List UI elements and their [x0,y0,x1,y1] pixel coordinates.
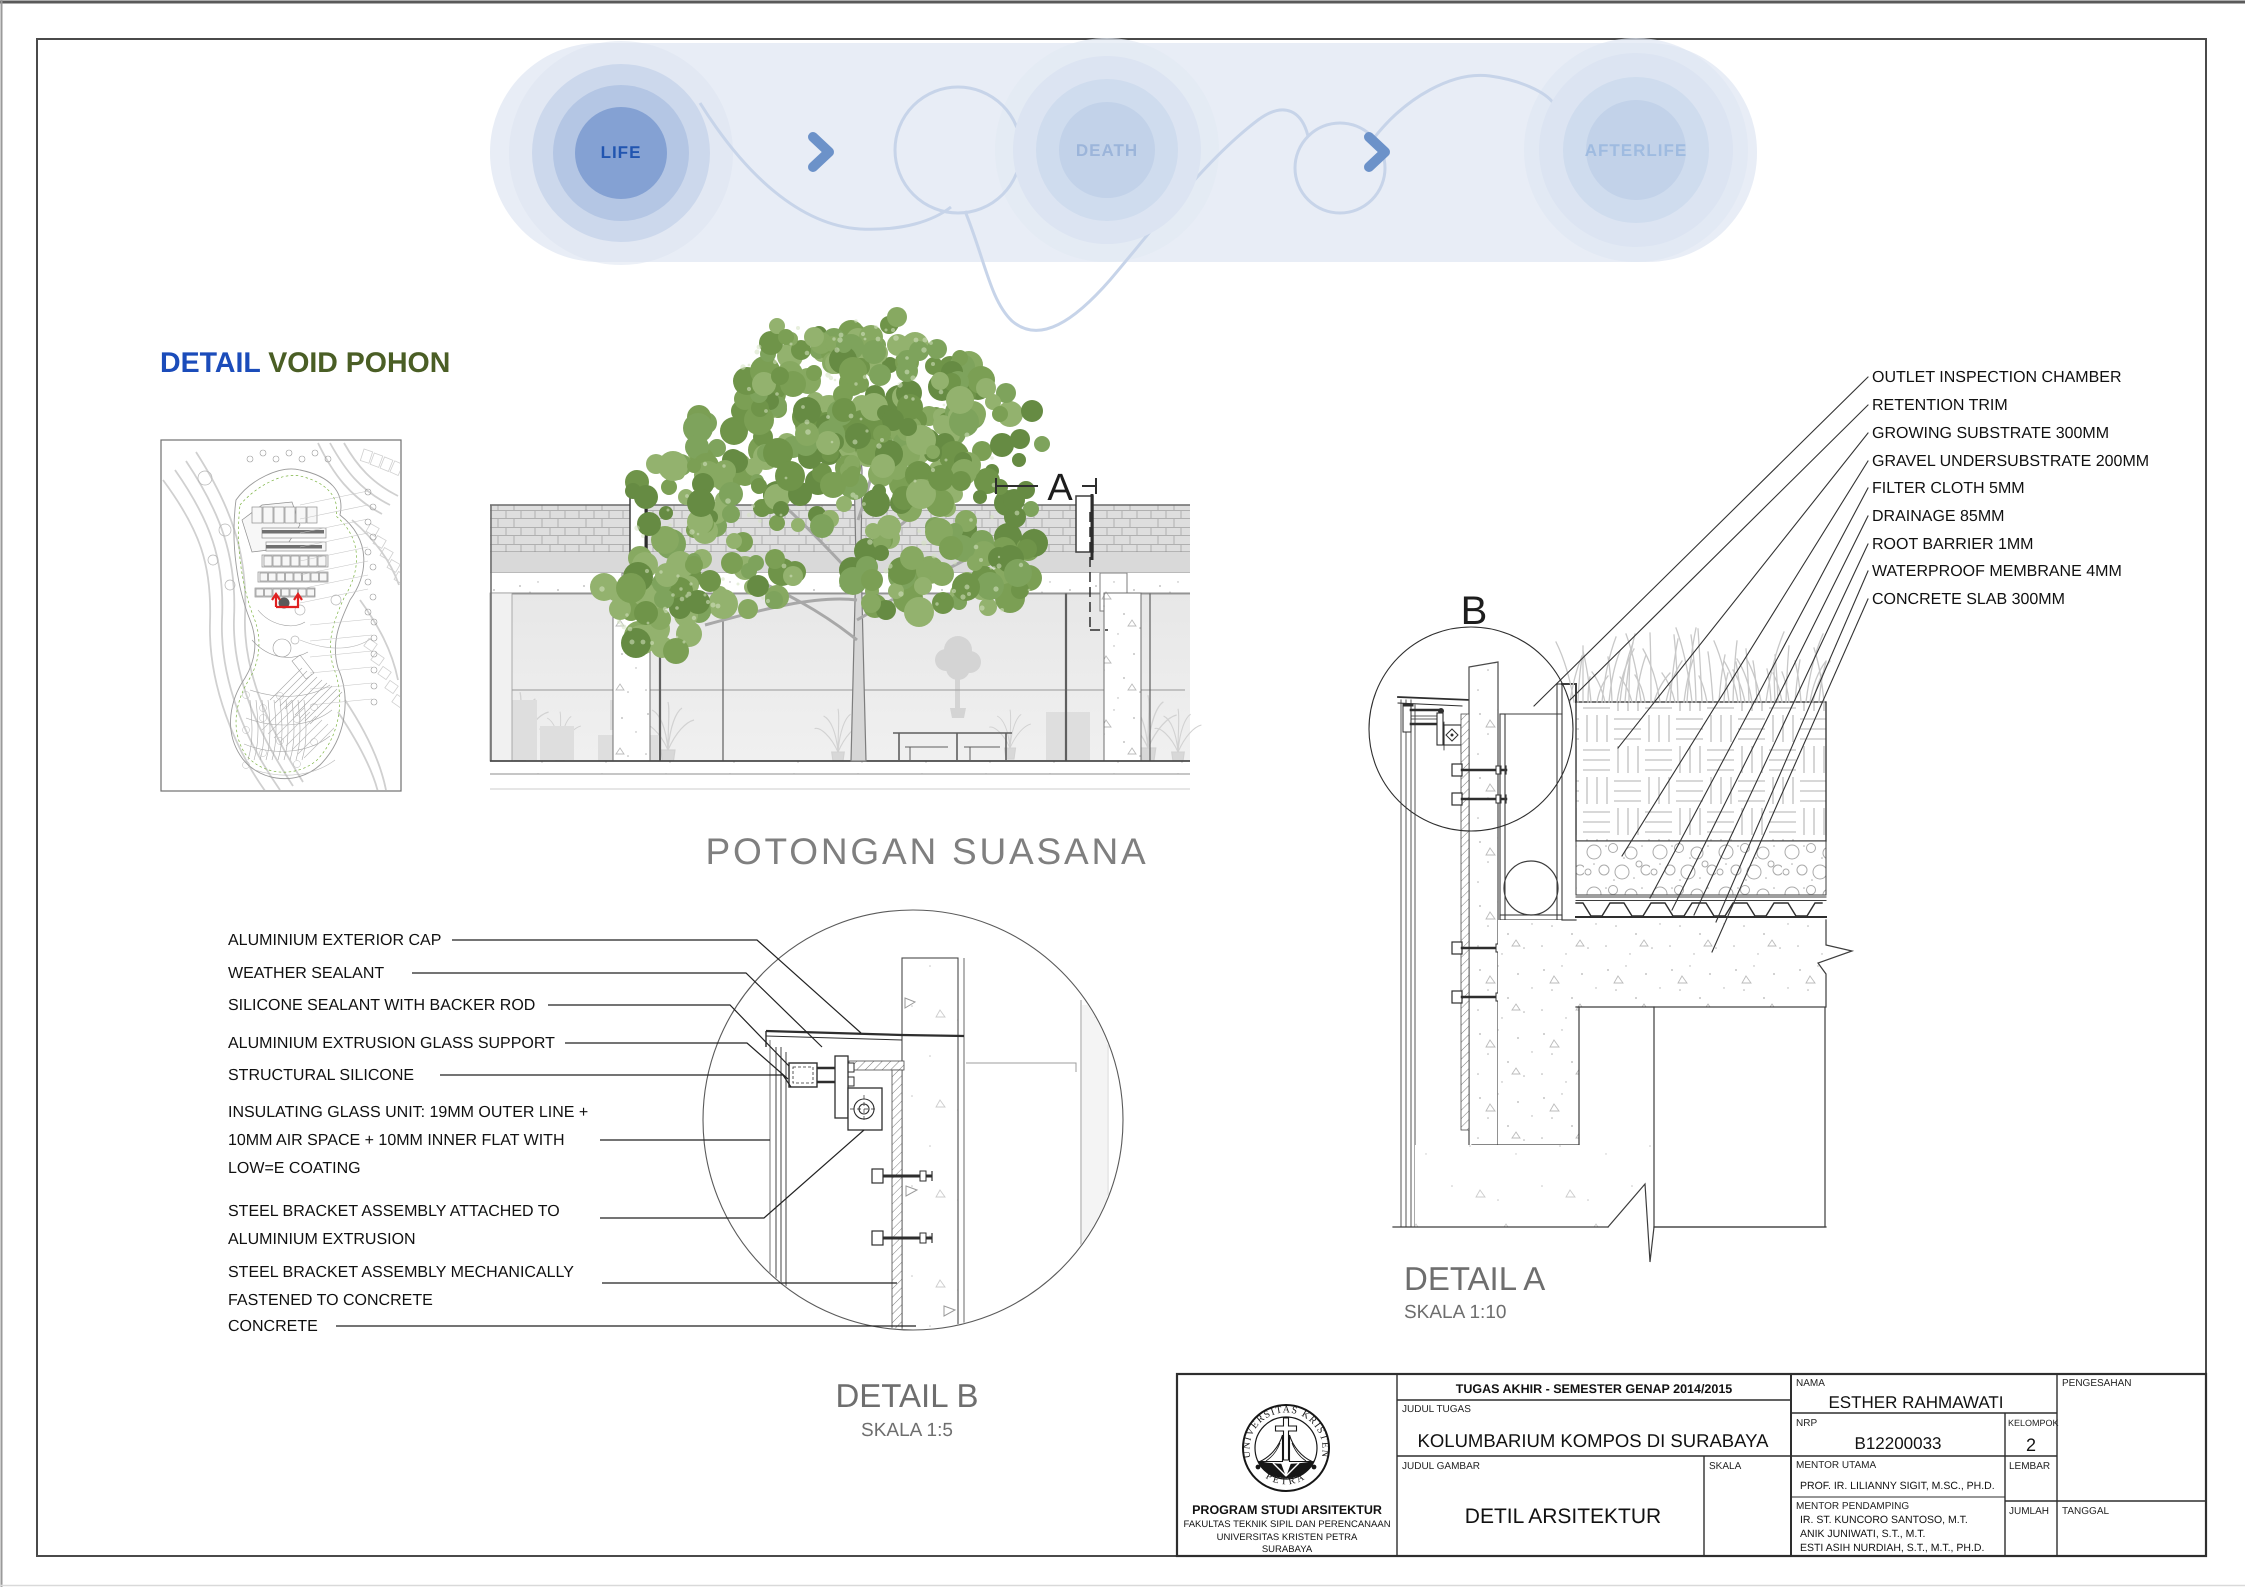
svg-text:SKALA 1:5: SKALA 1:5 [861,1420,953,1441]
svg-text:IR. ST. KUNCORO SANTOSO, M.T.: IR. ST. KUNCORO SANTOSO, M.T. [1800,1514,1968,1526]
svg-text:JUDUL GAMBAR: JUDUL GAMBAR [1402,1461,1480,1472]
svg-text:FASTENED TO CONCRETE: FASTENED TO CONCRETE [228,1292,433,1309]
svg-text:AFTERLIFE: AFTERLIFE [1585,141,1688,160]
svg-text:PENGESAHAN: PENGESAHAN [2062,1378,2131,1389]
svg-text:TUGAS AKHIR - SEMESTER GENAP 2: TUGAS AKHIR - SEMESTER GENAP 2014/2015 [1456,1382,1733,1396]
svg-text:NAMA: NAMA [1796,1378,1825,1389]
svg-text:STEEL BRACKET ASSEMBLY ATTACHE: STEEL BRACKET ASSEMBLY ATTACHED TO [228,1203,560,1220]
svg-text:STEEL BRACKET ASSEMBLY MECHANI: STEEL BRACKET ASSEMBLY MECHANICALLY [228,1264,574,1281]
svg-text:LEMBAR: LEMBAR [2009,1461,2050,1472]
svg-text:STRUCTURAL SILICONE: STRUCTURAL SILICONE [228,1067,414,1084]
svg-text:SKALA 1:10: SKALA 1:10 [1404,1302,1506,1323]
svg-text:KOLUMBARIUM KOMPOS DI SURABAYA: KOLUMBARIUM KOMPOS DI SURABAYA [1418,1430,1770,1451]
svg-text:DRAINAGE 85MM: DRAINAGE 85MM [1872,508,2004,525]
svg-text:NRP: NRP [1796,1418,1817,1429]
svg-text:KELOMPOK: KELOMPOK [2008,1418,2059,1428]
svg-text:DETAIL B: DETAIL B [835,1377,978,1414]
svg-text:B: B [1461,589,1488,633]
svg-text:INSULATING GLASS UNIT: 19MM OU: INSULATING GLASS UNIT: 19MM OUTER LINE + [228,1104,588,1121]
svg-text:MENTOR PENDAMPING: MENTOR PENDAMPING [1796,1501,1909,1512]
svg-text:SILICONE SEALANT WITH BACKER R: SILICONE SEALANT WITH BACKER ROD [228,997,535,1014]
svg-text:DETIL ARSITEKTUR: DETIL ARSITEKTUR [1465,1505,1661,1528]
svg-text:JUMLAH: JUMLAH [2009,1506,2049,1517]
svg-text:OUTLET INSPECTION CHAMBER: OUTLET INSPECTION CHAMBER [1872,369,2122,386]
svg-text:UNIVERSITAS KRISTEN PETRA: UNIVERSITAS KRISTEN PETRA [1217,1532,1358,1543]
svg-text:ALUMINIUM EXTRUSION: ALUMINIUM EXTRUSION [228,1231,416,1248]
svg-text:GRAVEL UNDERSUBSTRATE 200MM: GRAVEL UNDERSUBSTRATE 200MM [1872,453,2149,470]
svg-text:WEATHER SEALANT: WEATHER SEALANT [228,965,384,982]
svg-text:ESTI ASIH NURDIAH, S.T., M.T.,: ESTI ASIH NURDIAH, S.T., M.T., PH.D. [1800,1542,1984,1554]
svg-text:POTONGAN SUASANA: POTONGAN SUASANA [706,831,1149,872]
svg-text:GROWING SUBSTRATE 300MM: GROWING SUBSTRATE 300MM [1872,425,2109,442]
svg-text:PROGRAM STUDI ARSITEKTUR: PROGRAM STUDI ARSITEKTUR [1192,1503,1382,1517]
svg-text:FAKULTAS TEKNIK SIPIL DAN PERE: FAKULTAS TEKNIK SIPIL DAN PERENCANAAN [1183,1519,1390,1530]
svg-text:LOW=E COATING: LOW=E COATING [228,1160,361,1177]
svg-text:DETAIL VOID POHON: DETAIL VOID POHON [160,347,450,379]
svg-text:ALUMINIUM EXTRUSION GLASS SUPP: ALUMINIUM EXTRUSION GLASS SUPPORT [228,1035,555,1052]
svg-text:CONCRETE: CONCRETE [228,1318,318,1335]
svg-text:TANGGAL: TANGGAL [2062,1506,2109,1517]
svg-text:CONCRETE SLAB 300MM: CONCRETE SLAB 300MM [1872,591,2065,608]
svg-text:MENTOR UTAMA: MENTOR UTAMA [1796,1460,1877,1471]
svg-text:2: 2 [2026,1435,2036,1455]
svg-text:ALUMINIUM EXTERIOR CAP: ALUMINIUM EXTERIOR CAP [228,932,441,949]
svg-text:A: A [1047,467,1073,509]
svg-text:JUDUL TUGAS: JUDUL TUGAS [1402,1404,1471,1415]
svg-text:ESTHER RAHMAWATI: ESTHER RAHMAWATI [1828,1393,2003,1412]
svg-text:10MM AIR SPACE + 10MM INNER FL: 10MM AIR SPACE + 10MM INNER FLAT WITH [228,1132,565,1149]
svg-text:B12200033: B12200033 [1855,1434,1942,1453]
svg-text:ANIK JUNIWATI, S.T., M.T.: ANIK JUNIWATI, S.T., M.T. [1800,1528,1925,1540]
svg-text:SKALA: SKALA [1709,1461,1742,1472]
svg-text:DETAIL A: DETAIL A [1404,1260,1545,1297]
svg-text:SURABAYA: SURABAYA [1262,1544,1313,1555]
svg-text:LIFE: LIFE [601,143,642,162]
svg-text:WATERPROOF MEMBRANE 4MM: WATERPROOF MEMBRANE 4MM [1872,563,2122,580]
svg-text:PROF. IR. LILIANNY SIGIT, M.SC: PROF. IR. LILIANNY SIGIT, M.SC., PH.D. [1800,1480,1995,1492]
svg-text:FILTER CLOTH 5MM: FILTER CLOTH 5MM [1872,480,2025,497]
svg-text:ROOT BARRIER 1MM: ROOT BARRIER 1MM [1872,536,2034,553]
svg-text:DEATH: DEATH [1076,141,1138,160]
svg-text:RETENTION TRIM: RETENTION TRIM [1872,397,2008,414]
